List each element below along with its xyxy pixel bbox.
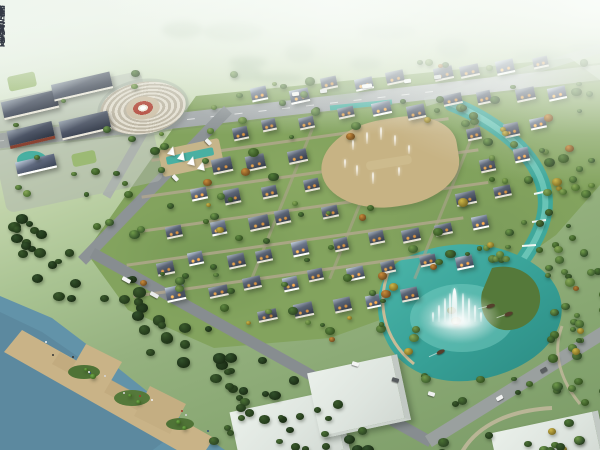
park-tree <box>580 249 589 256</box>
park-tree <box>568 385 576 392</box>
tree <box>230 71 238 78</box>
tree <box>586 91 594 97</box>
tree <box>241 168 250 175</box>
park-tree <box>561 269 568 275</box>
tree <box>571 88 581 97</box>
roadside-tree <box>302 446 309 450</box>
roadside-tree <box>276 439 282 444</box>
lake-fountain-jet <box>438 305 440 322</box>
pedestrian <box>207 430 209 432</box>
tree <box>477 246 483 251</box>
tree <box>489 155 495 160</box>
park-tree <box>577 328 584 334</box>
pond-fountain-jet <box>398 167 400 176</box>
park-tree <box>565 278 575 286</box>
tree <box>207 128 214 133</box>
tree <box>129 230 140 239</box>
roadside-tree <box>325 416 332 421</box>
tree <box>167 203 174 209</box>
tree <box>304 258 310 263</box>
tree <box>545 273 551 278</box>
roadside-tree <box>556 443 565 450</box>
clubhouse-tree <box>15 185 21 190</box>
forest-tree <box>18 250 28 258</box>
calligraphy-column: 中客。 <box>0 9 6 54</box>
canal-bank-tree <box>543 189 552 196</box>
tree <box>486 65 493 71</box>
tree <box>236 93 242 98</box>
pond-fountain-jet <box>344 159 346 168</box>
roadside-tree <box>524 441 532 447</box>
villa <box>512 146 529 163</box>
tree <box>436 96 444 103</box>
plaza-flower-ring <box>124 94 161 122</box>
tree <box>574 313 580 318</box>
forest-tree <box>245 409 254 417</box>
forest-tree <box>119 295 130 304</box>
lake-fountain-jet <box>432 312 434 322</box>
forest-tree <box>133 287 146 297</box>
clubhouse-tree <box>103 126 111 133</box>
tree <box>545 209 553 215</box>
pedestrian <box>185 414 187 416</box>
tree <box>202 158 209 164</box>
lakeside-tree <box>435 259 442 265</box>
tree <box>175 277 184 285</box>
tree <box>248 148 259 157</box>
tree <box>510 141 518 148</box>
park-tree <box>561 303 569 310</box>
islet-tree <box>90 374 96 379</box>
canal-bank-tree <box>469 112 478 119</box>
forest-tree <box>67 295 76 302</box>
tree <box>140 280 147 286</box>
tree <box>105 219 114 227</box>
tree <box>227 288 235 295</box>
planted-islet <box>114 390 150 406</box>
forest-tree <box>139 325 151 335</box>
lake-fountain-jet <box>480 312 482 322</box>
tree <box>369 290 376 296</box>
park-tree <box>575 320 584 327</box>
pedestrian <box>139 395 141 397</box>
forest-tree <box>11 234 23 244</box>
tree <box>581 190 591 198</box>
park-tree <box>548 354 558 362</box>
forest-tree <box>70 279 81 288</box>
tree <box>343 274 353 282</box>
clubhouse-tree <box>13 123 19 128</box>
park-tree <box>574 436 584 444</box>
forest-tree <box>146 349 154 356</box>
park-tree <box>552 382 563 391</box>
tree <box>279 100 286 105</box>
canal-bank-tree <box>502 131 509 137</box>
tree <box>203 219 209 224</box>
tree <box>347 316 352 320</box>
tree <box>280 84 286 89</box>
forest-tree <box>269 391 281 401</box>
roadside-tree <box>291 443 300 450</box>
forest-tree <box>239 387 248 394</box>
tree <box>288 307 297 315</box>
tree <box>213 273 218 277</box>
roadside-tree <box>259 415 270 424</box>
tree <box>576 82 581 86</box>
forest-tree <box>262 391 269 397</box>
forest-tree <box>322 443 330 450</box>
lake-fountain-jet <box>474 305 476 322</box>
lakeside-tree <box>379 322 384 326</box>
forest-tree <box>344 435 355 444</box>
tree <box>268 173 278 181</box>
roadside-tree <box>485 432 493 439</box>
forest-tree <box>177 357 190 367</box>
park-tree <box>554 246 563 253</box>
tree <box>235 235 243 241</box>
tree <box>265 309 272 314</box>
park-tree <box>587 269 595 276</box>
roadside-tree <box>358 427 367 434</box>
tree <box>93 223 102 230</box>
park-tree <box>576 166 583 172</box>
tree <box>359 214 367 220</box>
tree <box>433 228 443 236</box>
park-tree <box>588 158 595 163</box>
pond-fountain-jet <box>352 140 354 150</box>
tree <box>281 282 287 287</box>
tree <box>210 213 218 220</box>
tree <box>292 201 298 206</box>
lakeside-tree <box>389 283 398 291</box>
aerial-rendering: 烟云渺 变化， 宇宙穷 高深。 怀古壮 士志， 忧时君 子心。 寄言尘 中客。 <box>0 0 600 450</box>
lakeside-tree <box>421 375 431 383</box>
roadside-tree <box>238 415 245 421</box>
park-tree <box>547 336 555 343</box>
pedestrian <box>88 371 90 373</box>
park-tree <box>548 428 556 435</box>
park-tree <box>555 256 564 263</box>
tree <box>329 337 335 342</box>
tree <box>217 193 225 200</box>
villa <box>290 239 309 257</box>
tree <box>565 145 574 152</box>
tree <box>238 117 247 124</box>
clubhouse-tree <box>113 171 119 176</box>
tree <box>434 108 440 113</box>
villa <box>333 236 350 252</box>
lake-fountain-main <box>452 288 457 324</box>
lakeside-tree <box>496 251 504 258</box>
forest-tree <box>180 340 190 349</box>
lakeside-tree <box>380 299 385 303</box>
forest-tree <box>210 374 222 384</box>
villa <box>261 184 278 199</box>
forest-tree <box>100 295 109 302</box>
tree <box>408 245 418 253</box>
roadside-tree <box>209 437 219 445</box>
roadside-tree <box>438 438 449 447</box>
tree <box>351 122 361 130</box>
tree <box>445 250 455 258</box>
lake-fountain-jet <box>462 293 464 322</box>
villa <box>232 125 249 141</box>
tree <box>458 198 468 206</box>
tree <box>400 99 406 104</box>
park-tree <box>594 268 600 275</box>
roadside-tree <box>458 397 467 405</box>
park-tree <box>552 178 562 186</box>
tree <box>216 227 224 233</box>
tree <box>425 59 434 66</box>
lakeside-tree <box>570 327 576 332</box>
lake-fountain-jet <box>449 293 451 322</box>
tree <box>461 120 469 127</box>
pond-fountain-jet <box>380 127 382 140</box>
roadside-tree <box>296 413 305 420</box>
park-tree <box>544 158 555 167</box>
clubhouse-tree <box>131 70 140 77</box>
pedestrian <box>45 341 47 343</box>
park-tree <box>569 176 578 183</box>
tree <box>502 178 509 183</box>
tree <box>566 224 571 228</box>
pond-fountain-jet <box>408 145 410 154</box>
forest-tree <box>21 242 31 250</box>
pedestrian <box>104 375 106 377</box>
tree <box>124 191 133 198</box>
forest-tree <box>333 400 343 409</box>
tree <box>263 238 271 244</box>
tree <box>246 321 251 325</box>
islet-tree <box>136 400 141 404</box>
tree <box>378 272 387 280</box>
tree <box>430 264 437 270</box>
tree <box>367 205 374 211</box>
tree <box>510 85 515 89</box>
forest-tree <box>26 221 33 227</box>
forest-tree <box>30 227 39 235</box>
tree <box>158 167 165 172</box>
park-tree <box>588 183 595 188</box>
forest-tree <box>289 376 300 385</box>
tree <box>442 62 449 68</box>
tree <box>580 59 589 66</box>
pedestrian <box>151 399 153 401</box>
lakeside-tree <box>545 265 553 271</box>
lakeside-tree <box>404 348 413 355</box>
tree <box>175 285 184 292</box>
roadside-tree <box>452 401 459 407</box>
